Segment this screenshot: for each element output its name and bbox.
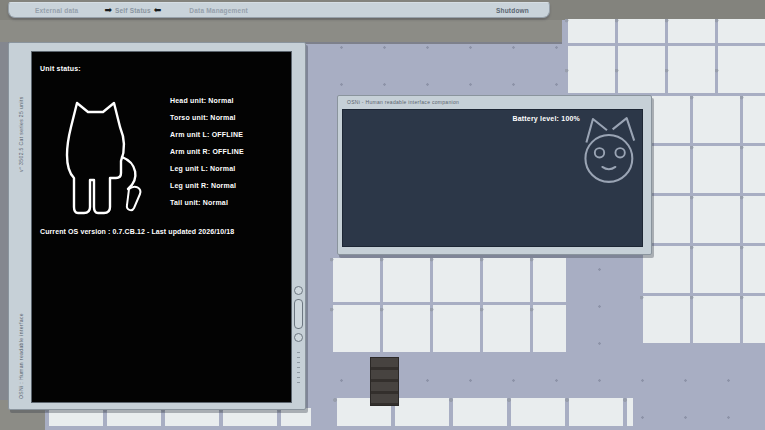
unit-status-heading: Unit status:	[40, 65, 81, 72]
scrollbar-up-button[interactable]	[294, 286, 303, 295]
tile-area-center	[330, 258, 566, 355]
cat-unit-figure-icon	[49, 95, 144, 217]
battery-level-label: Battery level: 100%	[512, 115, 580, 122]
top-menu-bar: External data ➡ Self Status ⬅ Data Manag…	[8, 2, 550, 18]
unit-status-line: Leg unit R: Normal	[170, 177, 244, 194]
scrollbar-down-button[interactable]	[294, 333, 303, 342]
scrollbar-tick-marks	[297, 349, 300, 383]
unit-status-line: Tail unit: Normal	[170, 194, 244, 211]
os-version-line: Current OS version : 0.7.CB.12 - Last up…	[40, 228, 234, 235]
companion-window-title: OSNi - Human readable interface companio…	[347, 99, 459, 105]
menu-item-external-data[interactable]: External data	[35, 7, 78, 14]
crate	[370, 357, 399, 406]
menu-item-data-management[interactable]: Data Management	[189, 7, 248, 14]
unit-status-line: Arm unit R: OFFLINE	[170, 143, 244, 160]
unit-status-line: Torso unit: Normal	[170, 109, 244, 126]
unit-status-line: Arm unit L: OFFLINE	[170, 126, 244, 143]
menu-item-self-status-label: Self Status	[115, 7, 151, 14]
upper-gray-band	[0, 20, 562, 42]
selection-arrow-left-icon: ⬅	[154, 6, 162, 15]
unit-status-window: v° 3502.5 Cat series 25 units OSNi : Hum…	[8, 42, 306, 410]
menu-item-shutdown[interactable]: Shutdown	[496, 7, 529, 14]
status-screen: Unit status: Head unit: NormalTorso unit…	[31, 51, 292, 403]
unit-status-line: Leg unit L: Normal	[170, 160, 244, 177]
companion-window: OSNi - Human readable interface companio…	[337, 95, 652, 255]
window-side-label-bottom: OSNi : Human readable interface	[18, 297, 24, 399]
companion-cat-face-icon	[577, 110, 637, 190]
unit-status-list: Head unit: NormalTorso unit: NormalArm u…	[170, 92, 244, 211]
tile-area-right-column	[640, 96, 765, 346]
companion-screen: Battery level: 100%	[342, 109, 643, 247]
menu-item-self-status[interactable]: ➡ Self Status ⬅	[104, 6, 161, 15]
unit-status-line: Head unit: Normal	[170, 92, 244, 109]
tile-area-top-right	[565, 19, 765, 96]
tile-area-bottom-left	[45, 408, 311, 430]
window-side-label-top: v° 3502.5 Cat series 25 units	[18, 56, 24, 172]
left-gray-strip	[0, 42, 8, 430]
window-scrollbar[interactable]	[292, 286, 304, 383]
scrollbar-track[interactable]	[294, 299, 303, 329]
selection-arrow-right-icon: ➡	[104, 6, 112, 15]
